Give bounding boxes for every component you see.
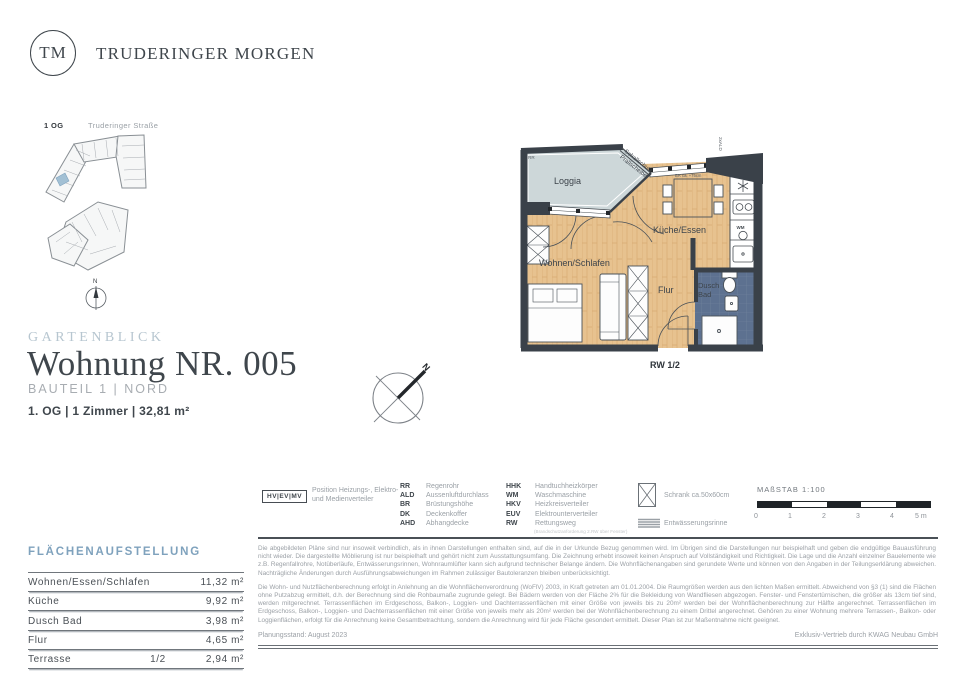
rw-footnote: (Brandschutzanforderung 2.RW über Fenste… xyxy=(534,529,627,534)
hv-ev-mv-box: HV|EV|MV xyxy=(262,490,307,503)
north-compass-icon: N xyxy=(362,356,440,434)
scale-label: MAßSTAB 1:100 xyxy=(757,485,826,494)
toilet-icon xyxy=(722,272,737,293)
sofa-symbol xyxy=(600,274,626,340)
scale-tick: 3 xyxy=(856,513,860,520)
disclaimer-paragraph-2: Die Wohn- und Nutzflächenberechnung erfo… xyxy=(258,584,936,625)
legend-item: WMWaschmaschine xyxy=(506,492,598,501)
table-row: Terrasse 1/2 2,94 m² xyxy=(28,650,244,669)
scale-bar xyxy=(757,501,931,508)
disclaimer-paragraph-1: Die abgebildeten Pläne sind nur insoweit… xyxy=(258,545,936,578)
svg-text:WM: WM xyxy=(737,225,745,230)
site-plan-map: N xyxy=(36,130,211,330)
scale-tick: 5 m xyxy=(915,513,927,520)
table-row: Dusch Bad 3,98 m² xyxy=(28,611,244,630)
site-floor-label: 1 OG xyxy=(44,121,64,130)
legend-item: RWRettungsweg xyxy=(506,520,598,529)
ald-label: 2xALD xyxy=(718,137,723,151)
legend-item: EUVElektrounterverteiler xyxy=(506,511,598,520)
entwaesserungsrinne-label: Entwässerungsrinne xyxy=(664,520,727,527)
bed-symbol xyxy=(528,284,582,342)
sink-icon xyxy=(733,200,754,214)
table-row: Wohnen/Essen/Schlafen 11,32 m² xyxy=(28,573,244,592)
room-label-kitchen: Küche/Essen xyxy=(653,225,706,235)
schrank-label: Schrank ca.50x60cm xyxy=(664,492,729,499)
room-label-living: Wohnen/Schlafen xyxy=(539,258,610,268)
legend-item: BRBrüstungshöhe xyxy=(400,501,489,510)
legend-item: ALDAussenluftdurchlass xyxy=(400,492,489,501)
room-label-loggia: Loggia xyxy=(554,176,581,186)
scale-tick: 1 xyxy=(788,513,792,520)
site-compass-icon: N xyxy=(86,279,106,310)
divider-line xyxy=(258,537,938,539)
dishwasher-icon xyxy=(733,246,753,262)
area-table-heading: FLÄCHENAUFSTELLUNG xyxy=(28,546,201,558)
legend-item: RRRegenrohr xyxy=(400,483,489,492)
page-title: Wohnung NR. 005 xyxy=(27,344,297,384)
legend-column-2: HHKHandtuchheizkörper WMWaschmaschine HK… xyxy=(506,483,598,529)
hv-ev-mv-label: Position Heizungs-, Elektro- und Medienv… xyxy=(312,487,404,505)
floorplan-sheet: TM TRUDERINGER MORGEN 1 OG Truderinger S… xyxy=(0,0,960,679)
entwaesserungsrinne-symbol xyxy=(638,518,660,528)
table-row: Küche 9,92 m² xyxy=(28,592,244,611)
building-subtitle: BAUTEIL 1 | NORD xyxy=(28,382,169,396)
table-row: Flur 4,65 m² xyxy=(28,631,244,650)
brand-initials: TM xyxy=(39,43,67,63)
wardrobe-symbol xyxy=(628,266,648,340)
legend-column-1: RRRegenrohr ALDAussenluftdurchlass BRBrü… xyxy=(400,483,489,529)
legend-item: HKVHeizkreisverteiler xyxy=(506,501,598,510)
disclaimer: Die abgebildeten Pläne sind nur insoweit… xyxy=(258,545,936,631)
floor-plan: WM xyxy=(512,132,764,378)
schrank-symbol xyxy=(638,483,656,507)
distribution-note: Exklusiv-Vertrieb durch KWAG Neubau GmbH xyxy=(658,632,938,639)
bath-sink-icon xyxy=(725,296,738,311)
room-label-bath-1: Dusch xyxy=(698,281,719,290)
brand-logo: TM xyxy=(30,30,76,76)
footer-divider xyxy=(258,645,938,649)
area-table: Wohnen/Essen/Schlafen 11,32 m² Küche 9,9… xyxy=(28,572,244,669)
room-label-bath-2: Bad xyxy=(698,290,711,299)
legend-item: DKDeckenkoffer xyxy=(400,511,489,520)
brand-name: TRUDERINGER MORGEN xyxy=(96,44,315,64)
brh-label: BR ca. +75cm xyxy=(675,173,702,178)
scale-tick: 2 xyxy=(822,513,826,520)
legend-item: AHDAbhangdecke xyxy=(400,520,489,529)
site-street-label: Truderinger Straße xyxy=(88,121,158,130)
legend-item: HHKHandtuchheizkörper xyxy=(506,483,598,492)
unit-details: 1. OG | 1 Zimmer | 32,81 m² xyxy=(28,404,190,418)
svg-text:N: N xyxy=(420,361,432,373)
room-label-hall: Flur xyxy=(658,285,674,295)
planning-status: Planungsstand: August 2023 xyxy=(258,632,347,639)
scale-tick: 4 xyxy=(890,513,894,520)
shower-symbol xyxy=(702,316,737,347)
escape-route-label: RW 1/2 xyxy=(650,360,680,370)
scale-tick: 0 xyxy=(754,513,758,520)
svg-text:N: N xyxy=(93,279,97,285)
rr-label: RR xyxy=(528,155,535,160)
